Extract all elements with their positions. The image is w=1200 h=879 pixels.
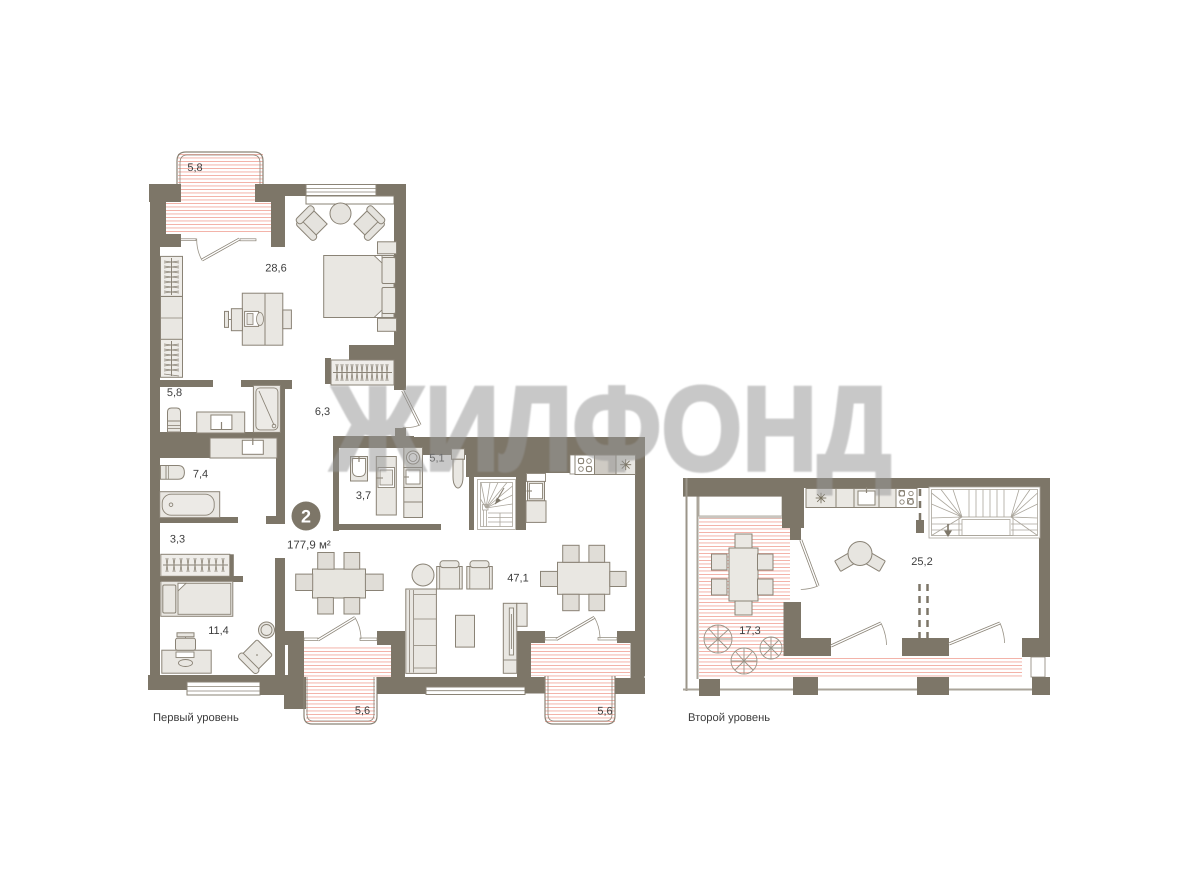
svg-text:3,3: 3,3 [170,534,185,546]
svg-text:5,8: 5,8 [167,387,182,399]
svg-text:28,6: 28,6 [265,263,286,275]
svg-text:2: 2 [301,507,311,527]
svg-text:17,3: 17,3 [739,625,760,637]
svg-text:47,1: 47,1 [507,573,528,585]
svg-text:177,9 м²: 177,9 м² [287,540,331,552]
svg-text:Второй уровень: Второй уровень [688,712,770,724]
svg-text:25,2: 25,2 [911,556,932,568]
svg-text:7,4: 7,4 [193,469,208,481]
svg-text:ЖИЛФОНД: ЖИЛФОНД [330,362,892,496]
svg-text:Первый уровень: Первый уровень [153,712,239,724]
svg-text:11,4: 11,4 [208,625,229,637]
svg-text:5,6: 5,6 [597,706,612,718]
svg-text:5,6: 5,6 [355,705,370,717]
svg-text:6,3: 6,3 [315,406,330,418]
svg-text:5,8: 5,8 [187,162,202,174]
